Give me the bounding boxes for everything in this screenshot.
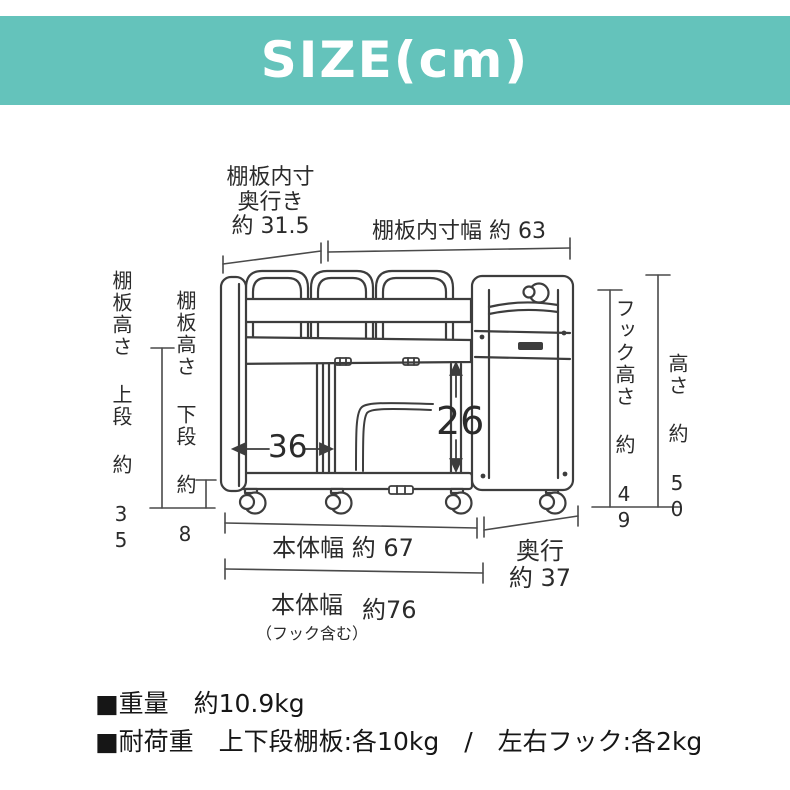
dim-lower-inner-height-value: 26 (436, 399, 484, 443)
dim-depth-label: 奥行 約 37 (498, 538, 582, 592)
left-side-post (221, 277, 246, 491)
shelf-unit-drawing (221, 271, 472, 514)
caster-icon (446, 489, 472, 514)
spec-load-capacity-text: ■耐荷重 上下段棚板:各10kg / 左右フック:各2kg (95, 722, 702, 758)
dim-overall-height-label: 高さ 約 50 (667, 353, 687, 523)
dim-body-width-hooks-value: 約76 (362, 597, 417, 624)
dim-body-width-hooks-label: 本体幅 (271, 592, 343, 619)
dim-lower-inner-width-value: 36 (268, 429, 307, 465)
dim-shelf-inner-width-label: 棚板内寸幅 約 63 (345, 220, 573, 245)
size-diagram-page: SIZE(cm) (0, 0, 790, 790)
caster-icon (540, 489, 566, 514)
stored-bag-outline (356, 403, 433, 471)
dim-shelf-inner-depth-label: 棚板内寸 奥行き 約 31.5 (193, 166, 348, 240)
dim-body-width-label: 本体幅 約 67 (253, 535, 433, 562)
top-rail (229, 299, 471, 322)
base-clip (389, 486, 413, 494)
dim-body-width-hooks-note: （フック含む） (256, 620, 368, 644)
upper-shelf (226, 337, 471, 364)
caster-icon (240, 489, 266, 514)
caster-icon (326, 489, 352, 514)
spec-weight-text: ■重量 約10.9kg (95, 684, 305, 720)
dim-shelf-height-lower-label: 棚板高さ 下段 約 8 (175, 290, 195, 548)
side-panel-drawing (472, 276, 573, 514)
base-board (226, 473, 472, 489)
dim-shelf-height-upper-label: 棚板高さ 上段 約 35 (111, 270, 131, 554)
dim-hook-height-label: フック高さ 約 49 (614, 298, 634, 534)
brand-label-plate (518, 342, 543, 350)
